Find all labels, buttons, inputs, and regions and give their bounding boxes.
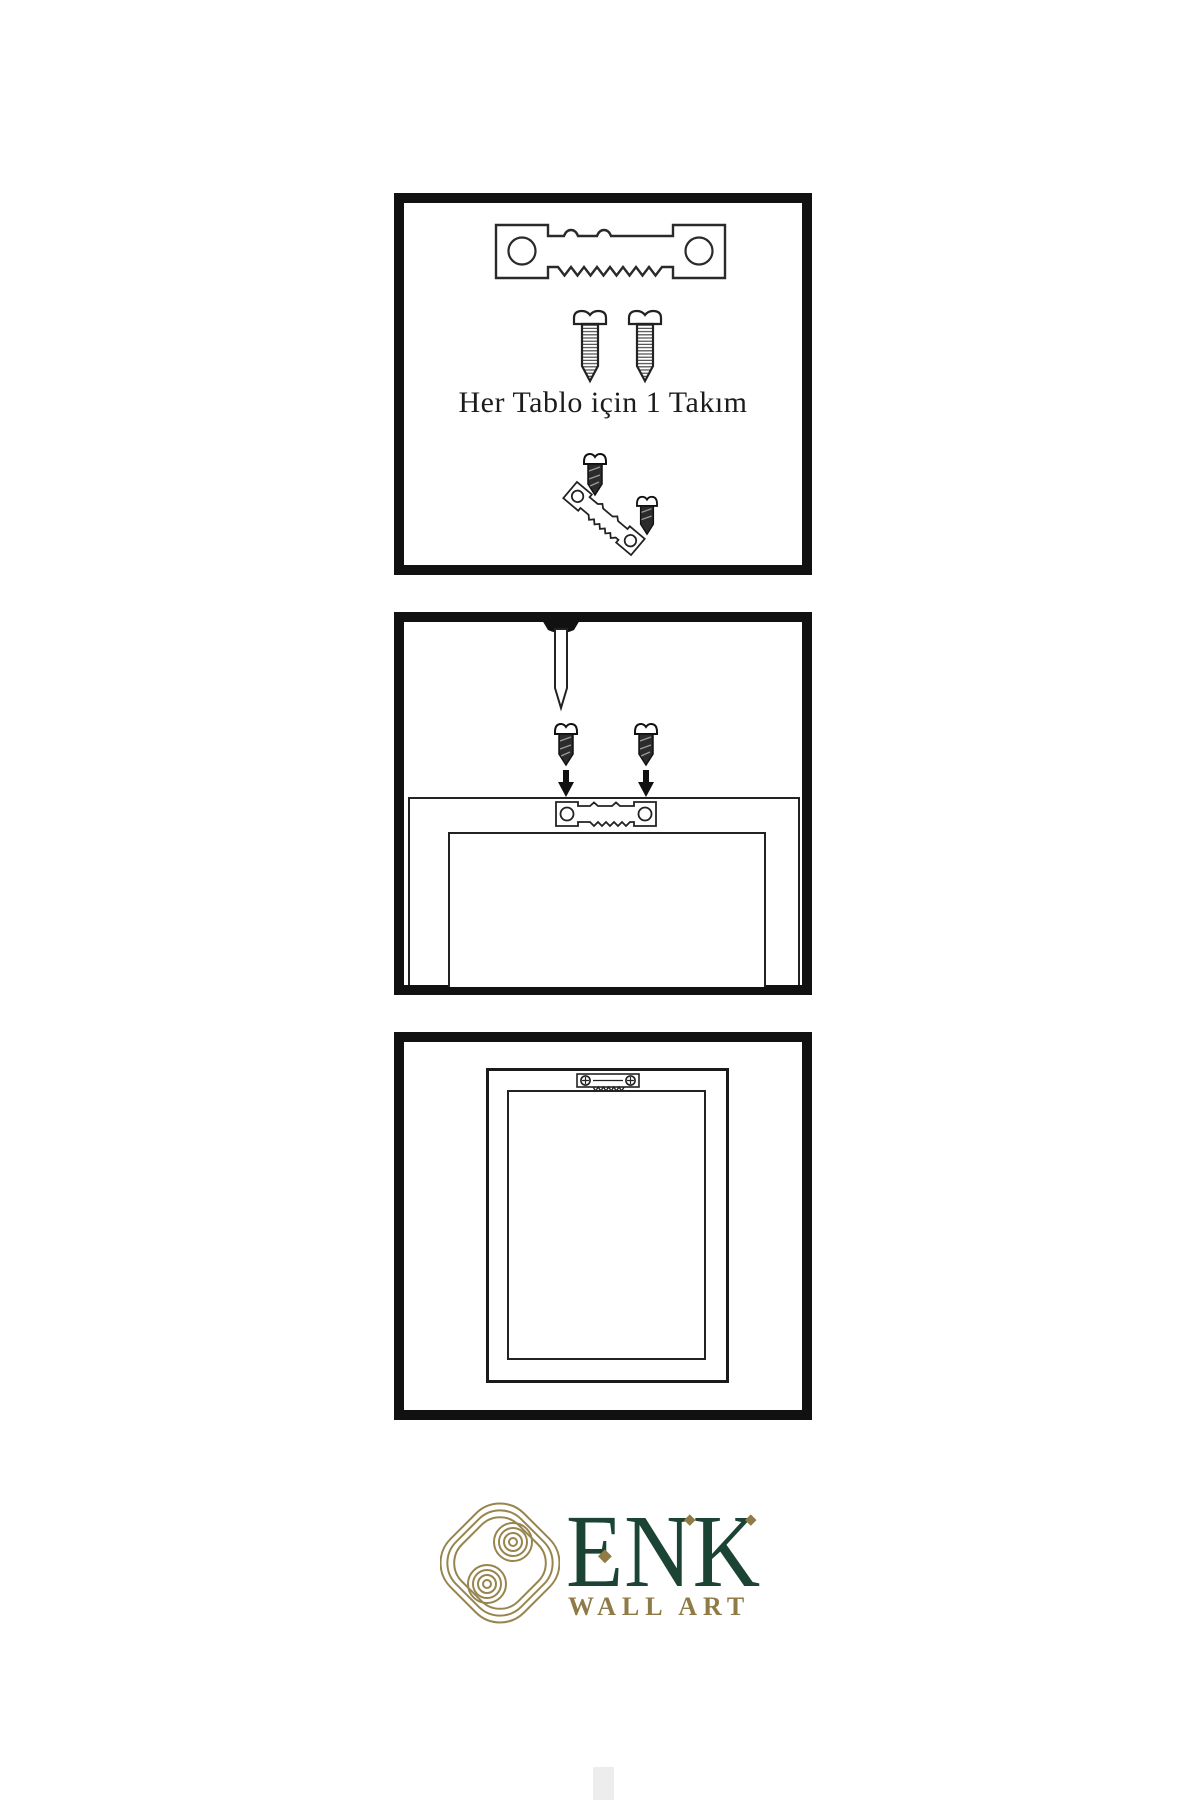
down-arrow-icon [637,770,655,798]
wall-nail-icon [541,620,581,720]
dark-screw-icon [553,722,579,768]
dark-screw-icon [635,495,659,537]
step-panel-hang-frame [394,1032,812,1420]
frame-back-inner [507,1090,706,1360]
diamond-accent-icon: ◆ [598,1547,612,1565]
dark-screw-icon [633,722,659,768]
watermark-fragment [593,1767,614,1800]
brand-tagline: WALL ART [568,1592,750,1622]
knot-logo-icon [440,1500,560,1627]
mounted-sawtooth-hanger-icon [576,1073,640,1093]
sawtooth-hanger-icon [494,223,727,280]
frame-back-inner [448,832,766,987]
instruction-sheet: Her Tablo için 1 Takım [0,0,1200,1800]
kit-caption: Her Tablo için 1 Takım [404,386,802,420]
screw-icon [626,308,664,386]
diamond-accent-icon: ◆ [684,1512,696,1527]
step-panel-mount-wall [394,612,812,995]
brand-name: ENK [566,1500,761,1604]
diamond-accent-icon: ◆ [745,1512,757,1527]
down-arrow-icon [557,770,575,798]
frame-back-outer [486,1068,729,1383]
step-panel-hardware-kit: Her Tablo için 1 Takım [394,193,812,575]
screw-icon [571,308,609,386]
sawtooth-hanger-icon [554,800,658,828]
